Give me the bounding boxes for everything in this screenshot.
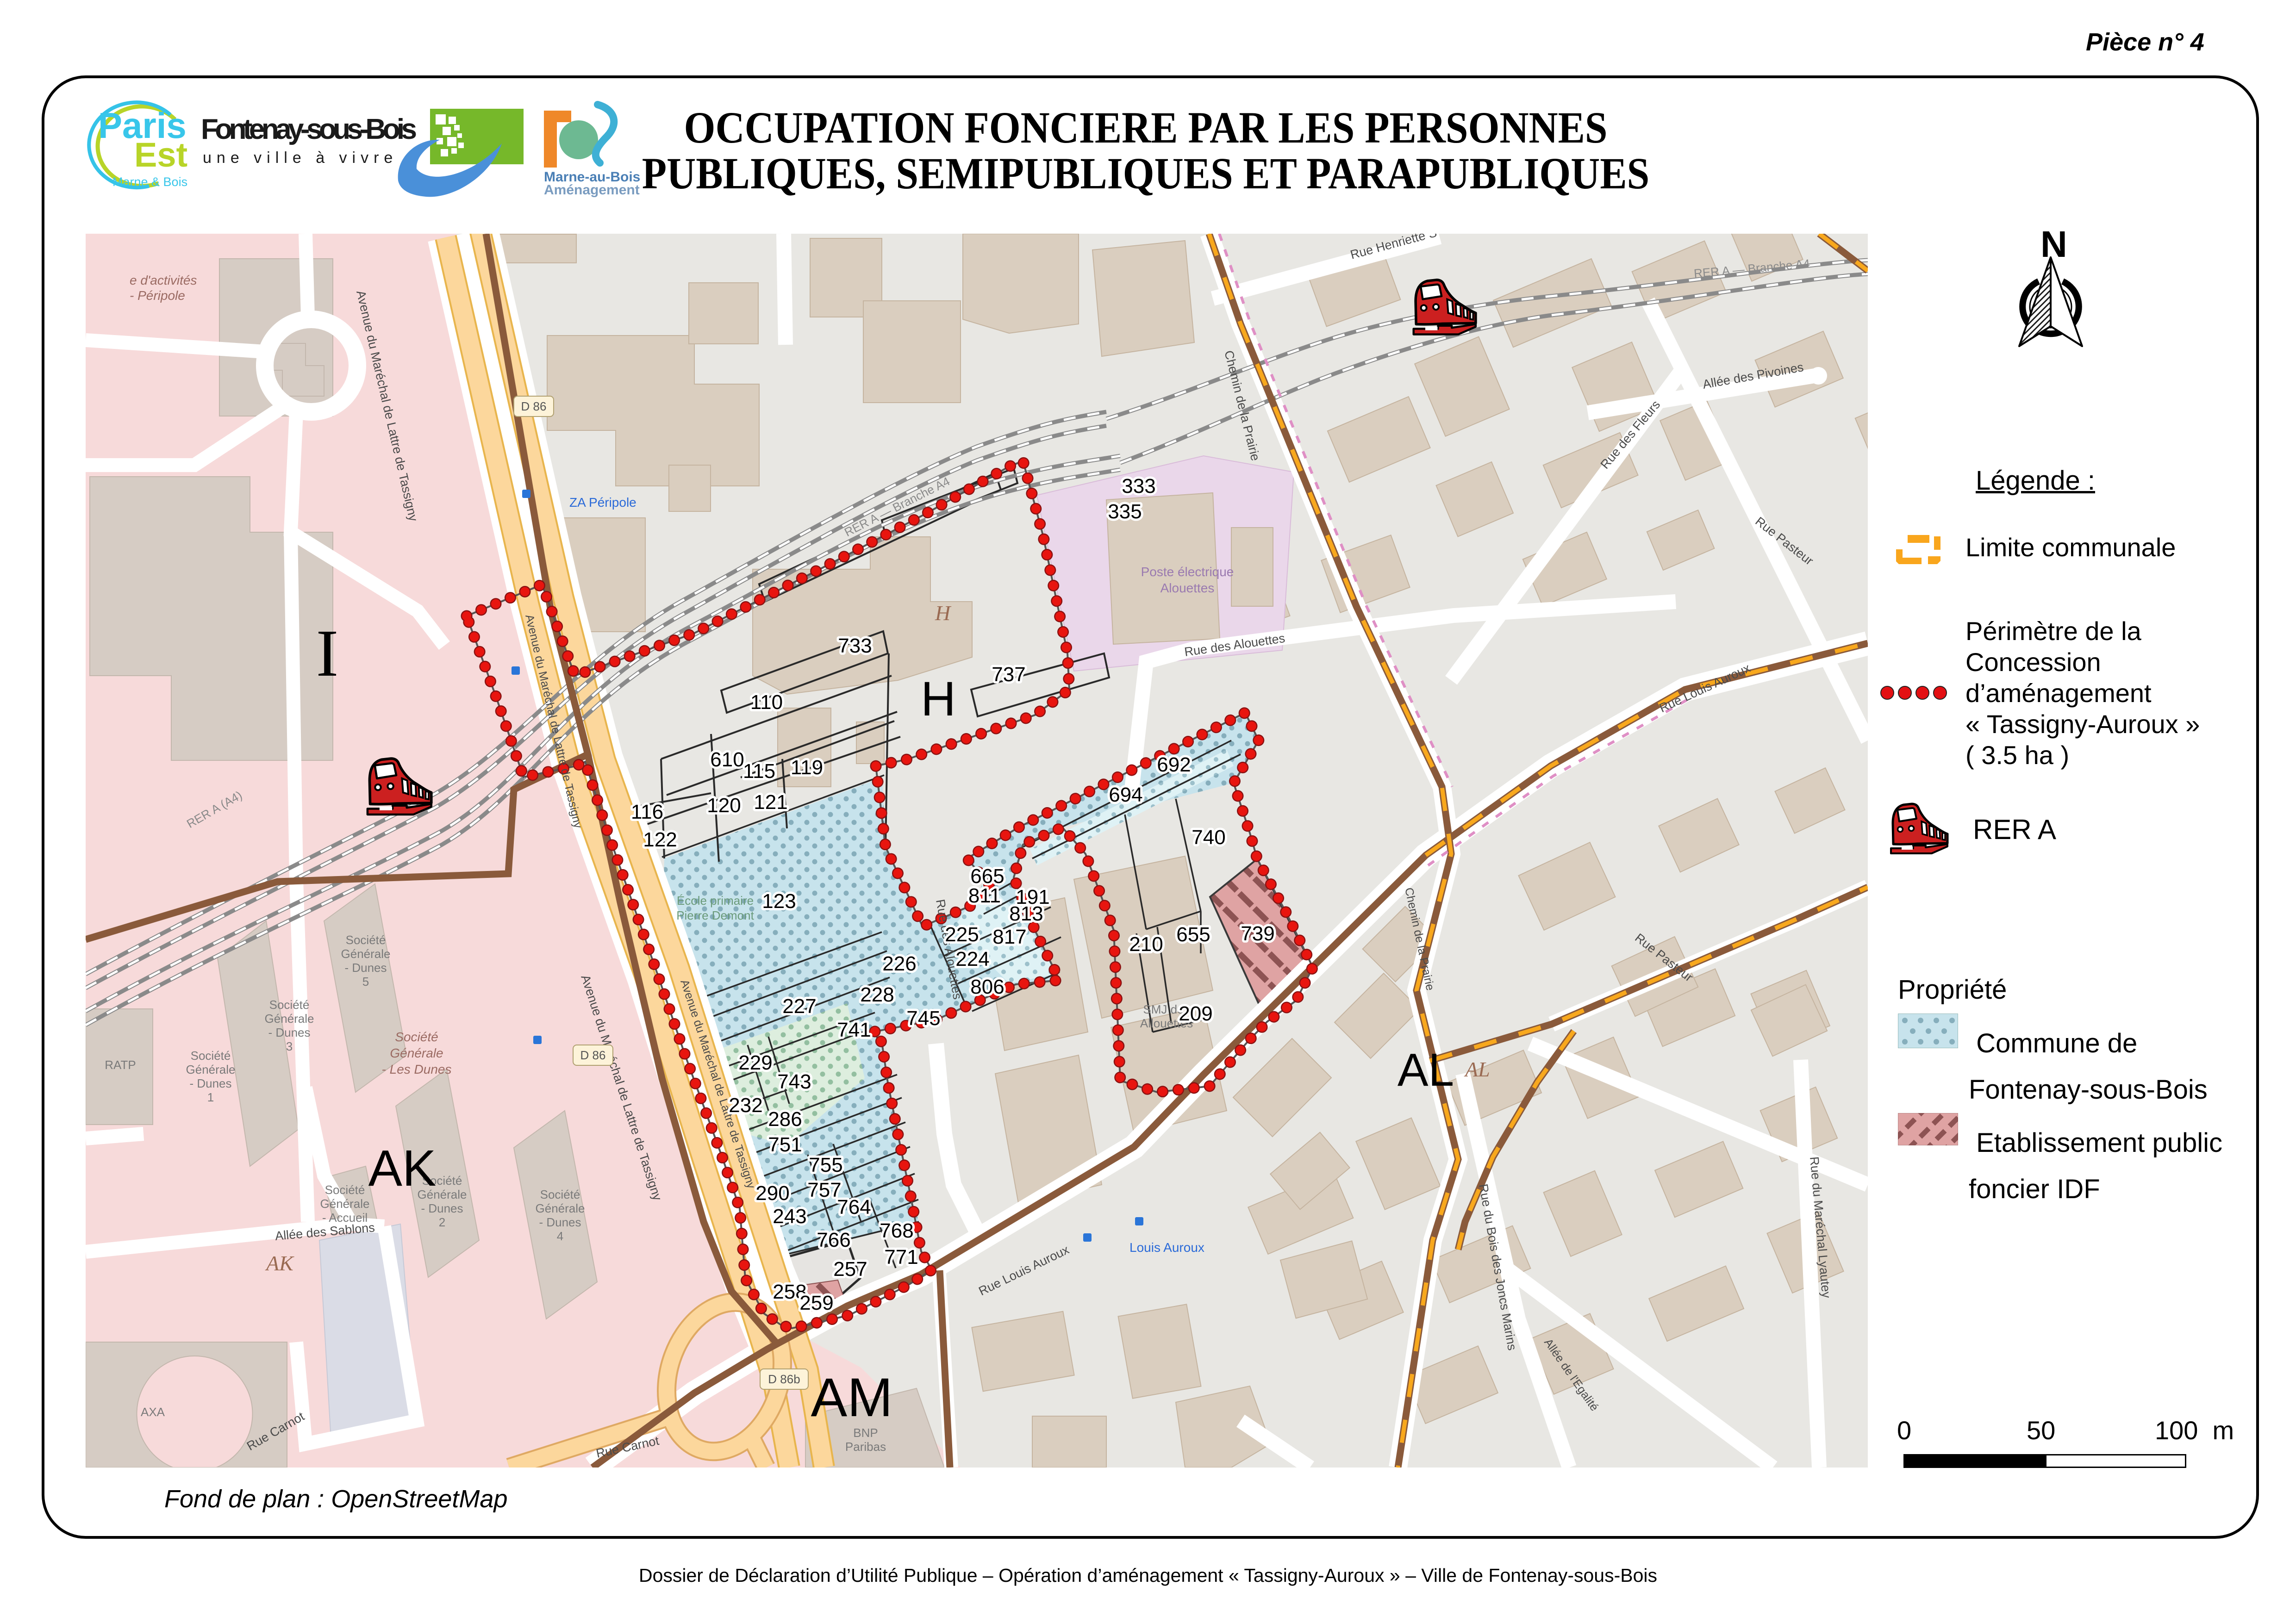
svg-text:Alouettes: Alouettes [1160,581,1215,595]
svg-text:3: 3 [286,1039,293,1053]
svg-text:122: 122 [643,828,677,851]
svg-text:I: I [316,616,338,690]
svg-text:655: 655 [1176,923,1210,946]
svg-text:Louis Auroux: Louis Auroux [1129,1240,1204,1255]
svg-text:232: 232 [729,1094,762,1117]
svg-text:813: 813 [1009,902,1043,925]
svg-text:333: 333 [1122,475,1155,497]
svg-text:- Dunes: - Dunes [268,1026,310,1039]
svg-text:une ville à vivre: une ville à vivre [203,149,398,167]
svg-text:226: 226 [882,952,916,975]
svg-text:Générale: Générale [186,1063,236,1076]
svg-text:119: 119 [791,756,823,779]
svg-text:743: 743 [777,1070,811,1093]
svg-text:1: 1 [207,1090,214,1104]
svg-text:766: 766 [817,1229,850,1251]
svg-text:- Dunes: - Dunes [421,1201,463,1215]
svg-text:120: 120 [707,794,741,817]
svg-text:Paribas: Paribas [845,1440,886,1454]
svg-text:Générale: Générale [390,1046,443,1060]
svg-text:739: 739 [1241,922,1274,945]
svg-text:AK: AK [265,1251,294,1275]
svg-text:737: 737 [992,663,1025,686]
svg-text:741: 741 [837,1019,871,1041]
svg-text:286: 286 [768,1108,802,1131]
svg-text:335: 335 [1108,500,1142,523]
svg-text:811: 811 [968,884,1001,907]
svg-text:- Dunes: - Dunes [344,961,387,975]
svg-text:5: 5 [362,975,369,989]
svg-text:AK: AK [368,1140,437,1197]
svg-text:D 86b: D 86b [768,1372,800,1386]
svg-text:Générale: Générale [320,1197,370,1211]
svg-text:Société: Société [325,1183,365,1197]
svg-text:740: 740 [1192,826,1225,849]
svg-text:259: 259 [799,1292,833,1314]
svg-text:Société: Société [395,1030,438,1044]
svg-text:Générale: Générale [265,1012,314,1026]
svg-text:757: 757 [807,1179,841,1201]
svg-text:Société: Société [540,1188,580,1201]
svg-text:121: 121 [754,791,787,814]
svg-text:123: 123 [762,890,796,913]
svg-text:228: 228 [860,983,894,1006]
svg-text:Société: Société [269,998,310,1012]
svg-text:764: 764 [837,1196,871,1219]
svg-text:771: 771 [884,1246,918,1269]
svg-text:Société: Société [191,1049,231,1063]
svg-text:692: 692 [1157,753,1191,776]
svg-text:H: H [921,672,956,726]
svg-text:110: 110 [750,691,783,714]
svg-text:817: 817 [992,926,1026,948]
svg-text:Société: Société [346,933,386,947]
svg-text:224: 224 [955,948,989,970]
svg-text:Est: Est [134,136,187,174]
svg-text:N: N [2040,224,2067,265]
svg-text:225: 225 [945,923,979,946]
svg-text:115: 115 [743,760,775,783]
svg-text:D 86: D 86 [580,1048,606,1062]
svg-text:- Dunes: - Dunes [189,1076,231,1090]
svg-text:610: 610 [710,748,744,771]
svg-text:227: 227 [782,995,816,1018]
svg-text:- Accueil: - Accueil [322,1211,368,1225]
svg-text:116: 116 [631,801,663,823]
svg-text:755: 755 [809,1154,842,1176]
svg-text:ZA Péripole: ZA Péripole [569,495,636,510]
svg-text:- Les Dunes: - Les Dunes [382,1062,452,1076]
svg-text:751: 751 [768,1133,802,1156]
svg-text:2: 2 [439,1215,445,1229]
svg-text:- Péripole: - Péripole [130,288,185,303]
svg-text:D 86: D 86 [521,399,547,413]
svg-text:210: 210 [1129,933,1163,956]
svg-text:- Dunes: - Dunes [539,1215,581,1229]
svg-text:768: 768 [880,1219,913,1242]
svg-text:Générale: Générale [341,947,391,961]
svg-text:745: 745 [906,1007,940,1030]
svg-text:694: 694 [1109,784,1142,806]
svg-text:École primaire: École primaire [677,894,754,908]
svg-text:290: 290 [755,1182,789,1205]
svg-text:AL: AL [1464,1057,1490,1081]
svg-text:Fontenay-sous-Bois: Fontenay-sous-Bois [201,113,417,145]
svg-text:243: 243 [773,1205,806,1228]
svg-text:Marne & Bois: Marne & Bois [112,175,187,189]
svg-text:AL: AL [1398,1044,1454,1096]
svg-text:733: 733 [838,634,872,657]
svg-text:Pierre Demont: Pierre Demont [676,908,754,922]
svg-text:RATP: RATP [105,1058,136,1072]
svg-text:AXA: AXA [141,1405,165,1419]
svg-text:209: 209 [1179,1002,1212,1025]
svg-text:Générale: Générale [536,1201,585,1215]
svg-text:257: 257 [833,1258,867,1281]
svg-text:229: 229 [738,1051,772,1074]
svg-text:H: H [935,601,952,625]
svg-text:AM: AM [811,1367,893,1428]
svg-text:806: 806 [970,976,1004,998]
svg-text:4: 4 [557,1229,563,1243]
svg-text:e d'activités: e d'activités [130,273,197,287]
svg-text:Poste électrique: Poste électrique [1141,565,1234,579]
